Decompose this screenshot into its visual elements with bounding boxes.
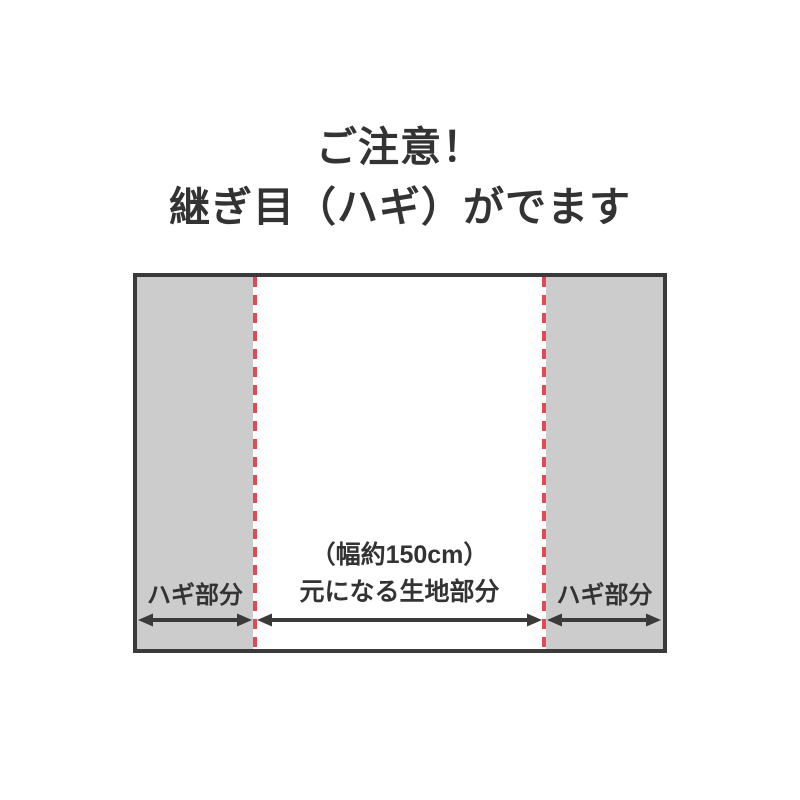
notice-subtitle: 継ぎ目（ハギ）がでます bbox=[0, 187, 800, 228]
base-fabric-label: 元になる生地部分 bbox=[257, 580, 542, 605]
left-seam-label: ハギ部分 bbox=[137, 584, 253, 608]
right-width-double-arrow-icon bbox=[547, 612, 661, 628]
caution-notice-page: ご注意！ 継ぎ目（ハギ）がでます ハギ部分 （幅約150cm） 元になる生地部分… bbox=[0, 0, 800, 800]
left-width-double-arrow-icon bbox=[138, 612, 252, 628]
notice-title: ご注意！ bbox=[0, 127, 800, 168]
right-seam-label: ハギ部分 bbox=[546, 584, 663, 608]
center-width-double-arrow-icon bbox=[257, 612, 542, 628]
fabric-width-label: （幅約150cm） bbox=[257, 543, 542, 568]
fabric-seam-diagram: ハギ部分 （幅約150cm） 元になる生地部分 ハギ部分 bbox=[133, 273, 667, 653]
